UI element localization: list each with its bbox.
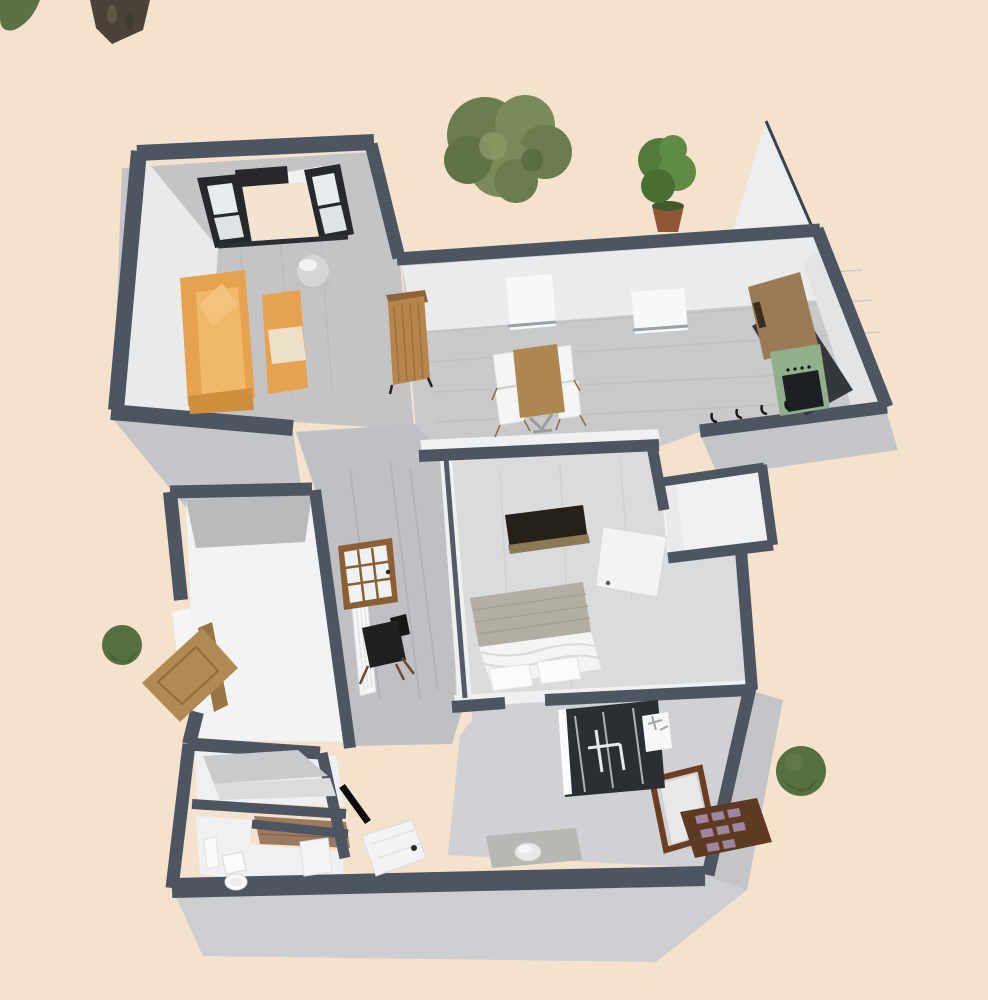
glazed-door-handle: [386, 570, 390, 574]
round-bush-west[interactable]: [102, 625, 142, 665]
bath-small-door[interactable]: [300, 838, 332, 876]
bedroom-door-handle: [606, 581, 610, 585]
entry-closet-north-face: [186, 494, 312, 548]
stove-knob: [807, 365, 810, 368]
bath-small-cabinet[interactable]: [204, 837, 219, 869]
bed-pillow-left: [489, 664, 533, 691]
dark-armchair[interactable]: [362, 620, 406, 668]
toilet-seat: [230, 878, 243, 887]
wall-entry-closet-south[interactable]: [189, 744, 320, 753]
dining-table[interactable]: [513, 344, 565, 418]
stool-highlight: [518, 845, 532, 853]
bed-pillow-right: [537, 657, 581, 684]
bedroom-door-open[interactable]: [596, 527, 667, 597]
round-bush-east[interactable]: [776, 746, 826, 796]
3d-view-canvas[interactable]: [0, 0, 988, 1000]
trunk-texture: [126, 14, 134, 30]
washbasin[interactable]: [642, 712, 672, 752]
wall-entry-closet-north[interactable]: [170, 489, 312, 492]
trunk-texture: [107, 5, 117, 23]
stove-knob: [786, 368, 789, 371]
dome-highlight: [299, 259, 317, 271]
love-seat-cushion: [268, 326, 306, 364]
3d-view-stage[interactable]: [0, 0, 988, 1000]
wall-living-north[interactable]: [137, 142, 374, 153]
glazed-door-panes: [344, 545, 392, 603]
stove-knob: [793, 367, 796, 370]
oven-window: [782, 370, 824, 412]
furniture-bathroom-main: [558, 700, 672, 797]
toilet-tank: [222, 852, 246, 874]
stove-knob: [800, 366, 803, 369]
wall-south[interactable]: [172, 876, 705, 888]
silver-dome-lamp[interactable]: [297, 255, 329, 287]
laundry-door-handle: [411, 845, 417, 851]
